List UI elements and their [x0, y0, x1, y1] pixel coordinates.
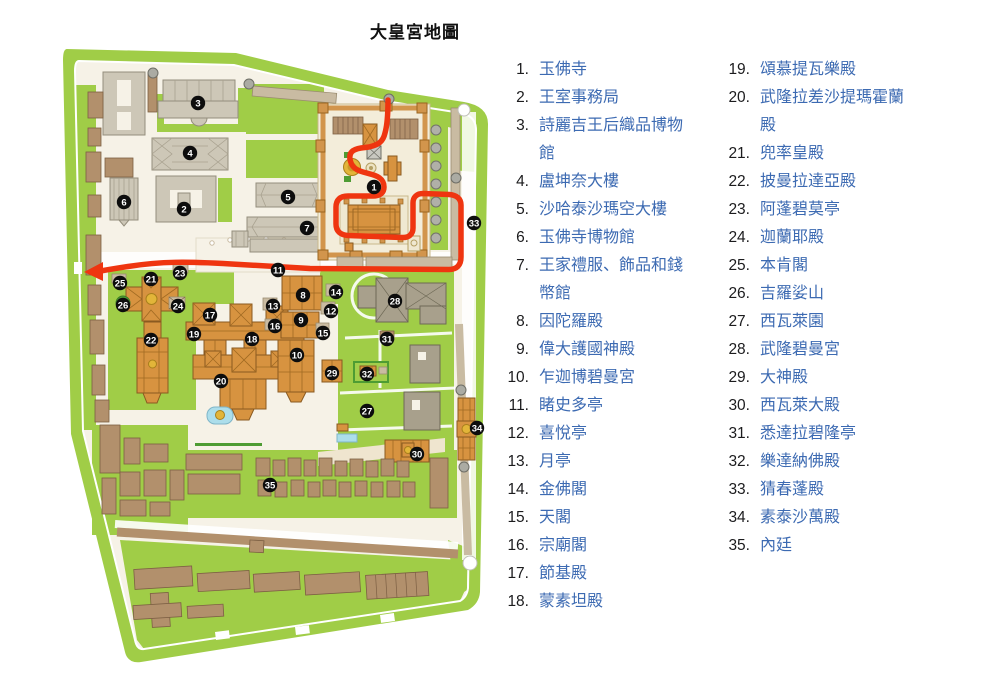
- legend-item-number: 27.: [700, 308, 750, 336]
- legend-item-number: 16.: [495, 532, 529, 560]
- map-marker-31: 31: [380, 332, 394, 346]
- svg-text:19: 19: [189, 329, 200, 340]
- legend-item-number: 6.: [495, 224, 529, 252]
- legend-item-number: 24.: [700, 224, 750, 252]
- legend-item-number: 12.: [495, 420, 529, 448]
- legend-item-number: 32.: [700, 448, 750, 476]
- map-marker-24: 24: [171, 299, 185, 313]
- map-marker-20: 20: [214, 374, 228, 388]
- legend-item: 34.素泰沙萬殿: [700, 504, 925, 532]
- legend-item: 8.因陀羅殿: [495, 308, 705, 336]
- map-marker-15: 15: [316, 326, 330, 340]
- legend-item-number: 5.: [495, 196, 529, 224]
- legend-item-number: 7.: [495, 252, 529, 280]
- legend-item-label[interactable]: 樂達納佛殿: [760, 448, 910, 476]
- svg-text:13: 13: [268, 301, 279, 312]
- svg-text:7: 7: [304, 223, 309, 234]
- map-marker-33: 33: [467, 216, 481, 230]
- legend-item-number: 30.: [700, 392, 750, 420]
- legend-item: 22.披曼拉達亞殿: [700, 168, 925, 196]
- legend-item-number: 11.: [495, 392, 529, 420]
- legend-item-label[interactable]: 沙哈泰沙瑪空大樓: [539, 196, 689, 224]
- svg-text:23: 23: [175, 268, 186, 279]
- legend-item-number: 29.: [700, 364, 750, 392]
- svg-text:9: 9: [298, 315, 303, 326]
- map-marker-23: 23: [173, 266, 187, 280]
- legend-item-label[interactable]: 因陀羅殿: [539, 308, 689, 336]
- map-marker-13: 13: [266, 299, 280, 313]
- legend-item-label[interactable]: 頌慕提瓦樂殿: [760, 56, 910, 84]
- legend-item: 30.西瓦萊大殿: [700, 392, 925, 420]
- svg-text:6: 6: [121, 197, 126, 208]
- legend-item-label[interactable]: 猜春蓬殿: [760, 476, 910, 504]
- legend-item-label[interactable]: 節基殿: [539, 560, 689, 588]
- map-marker-30: 30: [410, 447, 424, 461]
- svg-text:20: 20: [216, 376, 227, 387]
- legend-item: 1.玉佛寺: [495, 56, 705, 84]
- map-marker-3: 3: [191, 96, 205, 110]
- svg-text:12: 12: [326, 306, 337, 317]
- map-marker-25: 25: [113, 276, 127, 290]
- map-marker-22: 22: [144, 333, 158, 347]
- svg-text:35: 35: [265, 480, 276, 491]
- svg-text:17: 17: [205, 310, 216, 321]
- map-marker-6: 6: [117, 195, 131, 209]
- legend-item-number: 26.: [700, 280, 750, 308]
- legend-item-number: 18.: [495, 588, 529, 616]
- legend-item-label[interactable]: 詩麗吉王后織品博物館: [539, 112, 689, 168]
- svg-text:15: 15: [318, 328, 329, 339]
- legend-item: 4.盧坤奈大樓: [495, 168, 705, 196]
- legend-item: 35.內廷: [700, 532, 925, 560]
- svg-text:21: 21: [146, 274, 157, 285]
- svg-text:1: 1: [371, 182, 377, 193]
- map-marker-27: 27: [360, 404, 374, 418]
- svg-text:33: 33: [469, 218, 480, 229]
- legend-item-number: 8.: [495, 308, 529, 336]
- map-marker-29: 29: [325, 366, 339, 380]
- legend-item-number: 9.: [495, 336, 529, 364]
- svg-text:25: 25: [115, 278, 126, 289]
- svg-text:27: 27: [362, 406, 373, 417]
- legend-item: 24.迦蘭耶殿: [700, 224, 925, 252]
- legend-item-number: 19.: [700, 56, 750, 84]
- legend-item-label[interactable]: 月亭: [539, 448, 689, 476]
- legend-item-label[interactable]: 西瓦萊大殿: [760, 392, 910, 420]
- map-marker-7: 7: [300, 221, 314, 235]
- svg-text:18: 18: [247, 334, 258, 345]
- legend-item-number: 35.: [700, 532, 750, 560]
- legend-item: 25.本肯閣: [700, 252, 925, 280]
- legend-item-number: 1.: [495, 56, 529, 84]
- legend-item: 17.節基殿: [495, 560, 705, 588]
- svg-text:29: 29: [327, 368, 338, 379]
- svg-text:26: 26: [118, 300, 129, 311]
- svg-text:24: 24: [173, 301, 184, 312]
- legend-item-label[interactable]: 喜悅亭: [539, 420, 689, 448]
- map-marker-16: 16: [268, 319, 282, 333]
- map-marker-4: 4: [183, 146, 197, 160]
- legend-item-number: 22.: [700, 168, 750, 196]
- legend-item-label[interactable]: 王室事務局: [539, 84, 689, 112]
- legend-item-number: 34.: [700, 504, 750, 532]
- legend-item-label[interactable]: 素泰沙萬殿: [760, 504, 910, 532]
- map-marker-5: 5: [281, 190, 295, 204]
- legend-item-number: 17.: [495, 560, 529, 588]
- legend-item: 6.玉佛寺博物館: [495, 224, 705, 252]
- map-marker-9: 9: [294, 313, 308, 327]
- svg-text:11: 11: [273, 265, 284, 276]
- legend-item: 23.阿蓬碧莫亭: [700, 196, 925, 224]
- legend-item: 16.宗廟閣: [495, 532, 705, 560]
- svg-text:16: 16: [270, 321, 281, 332]
- map-marker-35: 35: [263, 478, 277, 492]
- legend-item: 13.月亭: [495, 448, 705, 476]
- legend-item: 14.金佛閣: [495, 476, 705, 504]
- map-marker-2: 2: [177, 202, 191, 216]
- svg-text:30: 30: [412, 449, 423, 460]
- legend-item: 11.睹史多亭: [495, 392, 705, 420]
- legend-item: 9.偉大護國神殿: [495, 336, 705, 364]
- legend-item-number: 13.: [495, 448, 529, 476]
- legend-item: 26.吉羅娑山: [700, 280, 925, 308]
- legend-item-label[interactable]: 本肯閣: [760, 252, 910, 280]
- grand-palace-map-page: 大皇宮地圖: [0, 0, 1000, 682]
- legend-column-2: 19.頌慕提瓦樂殿20.武隆拉差沙提瑪霍蘭殿21.兜率皇殿22.披曼拉達亞殿23…: [700, 56, 925, 560]
- map-marker-34: 34: [470, 421, 484, 435]
- legend-item-label[interactable]: 盧坤奈大樓: [539, 168, 689, 196]
- legend-item-number: 33.: [700, 476, 750, 504]
- legend-item-number: 10.: [495, 364, 529, 392]
- map-marker-8: 8: [296, 288, 310, 302]
- svg-text:31: 31: [382, 334, 393, 345]
- legend-item-label[interactable]: 睹史多亭: [539, 392, 689, 420]
- legend-item-number: 31.: [700, 420, 750, 448]
- svg-text:2: 2: [181, 204, 186, 215]
- legend-item-number: 25.: [700, 252, 750, 280]
- map-marker-17: 17: [203, 308, 217, 322]
- legend-item: 12.喜悅亭: [495, 420, 705, 448]
- legend-item-number: 14.: [495, 476, 529, 504]
- svg-text:4: 4: [187, 148, 193, 159]
- legend-item-label[interactable]: 阿蓬碧莫亭: [760, 196, 910, 224]
- legend-item-label[interactable]: 乍迦博碧曼宮: [539, 364, 689, 392]
- legend-item: 2.王室事務局: [495, 84, 705, 112]
- legend-item-label[interactable]: 武隆拉差沙提瑪霍蘭殿: [760, 84, 910, 140]
- legend-item-label[interactable]: 兜率皇殿: [760, 140, 910, 168]
- legend-item: 10.乍迦博碧曼宮: [495, 364, 705, 392]
- legend-item-label[interactable]: 武隆碧曼宮: [760, 336, 910, 364]
- svg-text:34: 34: [472, 423, 483, 434]
- legend-item-label[interactable]: 悉達拉碧隆亭: [760, 420, 910, 448]
- legend-item: 32.樂達納佛殿: [700, 448, 925, 476]
- svg-text:14: 14: [331, 287, 342, 298]
- legend-item-label[interactable]: 西瓦萊園: [760, 308, 910, 336]
- map-marker-1: 1: [367, 180, 381, 194]
- map-marker-11: 11: [271, 263, 285, 277]
- legend-item-number: 20.: [700, 84, 750, 112]
- map-marker-14: 14: [329, 285, 343, 299]
- map-marker-10: 10: [290, 348, 304, 362]
- legend-item: 20.武隆拉差沙提瑪霍蘭殿: [700, 84, 925, 140]
- legend-item-number: 3.: [495, 112, 529, 140]
- legend-item: 18.蒙素坦殿: [495, 588, 705, 616]
- legend-item: 15.天閣: [495, 504, 705, 532]
- svg-text:22: 22: [146, 335, 157, 346]
- legend-item-number: 2.: [495, 84, 529, 112]
- legend-column-1: 1.玉佛寺2.王室事務局3.詩麗吉王后織品博物館4.盧坤奈大樓5.沙哈泰沙瑪空大…: [495, 56, 705, 616]
- map-marker-21: 21: [144, 272, 158, 286]
- legend-item: 19.頌慕提瓦樂殿: [700, 56, 925, 84]
- palace-map: 1234567891011121314151617181920212223242…: [0, 0, 500, 682]
- map-marker-12: 12: [324, 304, 338, 318]
- legend-item-label[interactable]: 王家禮服、飾品和錢幣館: [539, 252, 689, 308]
- svg-text:28: 28: [390, 296, 401, 307]
- legend-item-label[interactable]: 玉佛寺: [539, 56, 689, 84]
- legend-item-label[interactable]: 迦蘭耶殿: [760, 224, 910, 252]
- svg-text:8: 8: [300, 290, 305, 301]
- legend-item-label[interactable]: 天閣: [539, 504, 689, 532]
- legend-item-number: 23.: [700, 196, 750, 224]
- legend-item: 3.詩麗吉王后織品博物館: [495, 112, 705, 168]
- legend-item: 28.武隆碧曼宮: [700, 336, 925, 364]
- legend-item-label[interactable]: 內廷: [760, 532, 910, 560]
- map-marker-28: 28: [388, 294, 402, 308]
- svg-text:32: 32: [362, 369, 373, 380]
- legend-item: 31.悉達拉碧隆亭: [700, 420, 925, 448]
- svg-text:10: 10: [292, 350, 303, 361]
- legend-item-label[interactable]: 玉佛寺博物館: [539, 224, 689, 252]
- map-marker-18: 18: [245, 332, 259, 346]
- legend-item-number: 21.: [700, 140, 750, 168]
- legend-item-label[interactable]: 宗廟閣: [539, 532, 689, 560]
- legend-item-label[interactable]: 吉羅娑山: [760, 280, 910, 308]
- map-marker-19: 19: [187, 327, 201, 341]
- legend-item: 29.大神殿: [700, 364, 925, 392]
- legend-item-number: 4.: [495, 168, 529, 196]
- map-marker-32: 32: [360, 367, 374, 381]
- legend-item: 27.西瓦萊園: [700, 308, 925, 336]
- legend-item-number: 28.: [700, 336, 750, 364]
- legend-item-number: 15.: [495, 504, 529, 532]
- legend-item-label[interactable]: 大神殿: [760, 364, 910, 392]
- legend-item-label[interactable]: 偉大護國神殿: [539, 336, 689, 364]
- legend-item: 33.猜春蓬殿: [700, 476, 925, 504]
- legend-item: 5.沙哈泰沙瑪空大樓: [495, 196, 705, 224]
- legend-item-label[interactable]: 蒙素坦殿: [539, 588, 689, 616]
- legend-item: 21.兜率皇殿: [700, 140, 925, 168]
- svg-text:5: 5: [285, 192, 291, 203]
- legend-item-label[interactable]: 披曼拉達亞殿: [760, 168, 910, 196]
- map-marker-26: 26: [116, 298, 130, 312]
- svg-text:3: 3: [195, 98, 200, 109]
- legend-item-label[interactable]: 金佛閣: [539, 476, 689, 504]
- legend-item: 7.王家禮服、飾品和錢幣館: [495, 252, 705, 308]
